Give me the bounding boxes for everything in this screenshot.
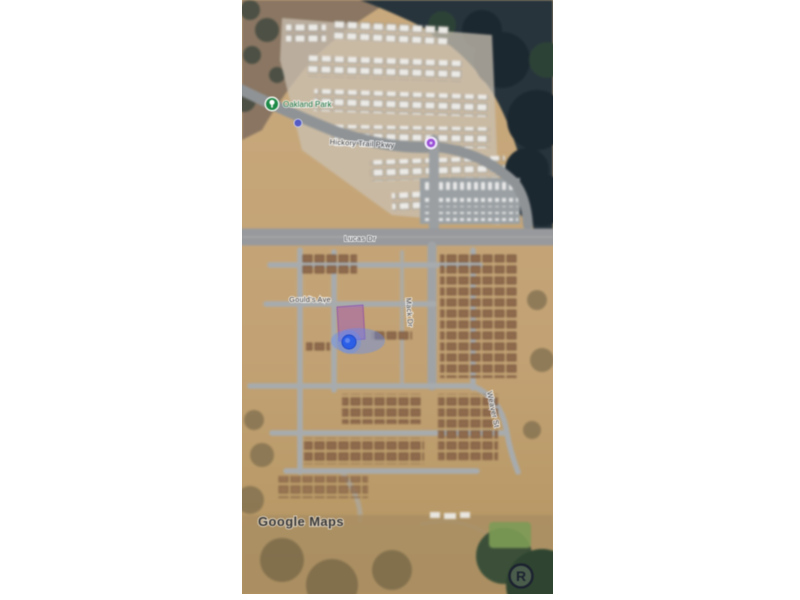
screenshot-canvas: Oakland Park Hickory Trail Pkwy Lucas Dr… (0, 0, 800, 600)
google-maps-watermark: Google Maps (258, 514, 344, 529)
street-label-main: Lucas Dr (344, 234, 376, 243)
user-location-dot (331, 328, 385, 354)
transit-stop-icon[interactable] (425, 137, 438, 150)
svg-text:R: R (516, 568, 526, 584)
park-poi-label[interactable]: Oakland Park (283, 100, 332, 109)
map-viewport[interactable]: Oakland Park Hickory Trail Pkwy Lucas Dr… (242, 0, 553, 594)
small-poi-icon[interactable] (294, 119, 302, 127)
map-image: Oakland Park Hickory Trail Pkwy Lucas Dr… (242, 0, 553, 594)
registered-trademark-icon: R (510, 565, 533, 588)
street-label-ave: Gould's Ave (289, 295, 331, 304)
park-poi-icon[interactable] (265, 97, 280, 112)
